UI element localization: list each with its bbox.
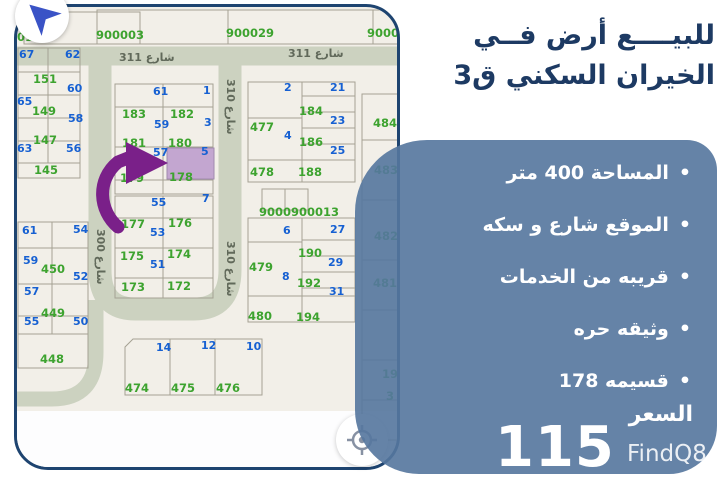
ad-image: 0190900003900029900026762151656014958147… [0, 0, 720, 480]
panel-bullet-item: وثيقه حره [355, 316, 691, 343]
compass-icon [15, 0, 69, 43]
plot-map: 0190900003900029900026762151656014958147… [14, 4, 400, 470]
details-panel: المساحة 400 مترالموقع شارع و سكهقريبه من… [355, 140, 717, 474]
panel-bullet-item: قريبه من الخدمات [355, 264, 691, 291]
panel-bullet-item: قسيمه 178 [355, 368, 691, 395]
ad-title-line1: للبيــــع أرض فــي [405, 16, 715, 56]
panel-bullet-item: الموقع شارع و سكه [355, 212, 691, 239]
price-value: 115 [495, 420, 615, 476]
pointer-arrow [14, 4, 400, 470]
price-label: السعر [629, 402, 693, 427]
watermark: FindQ8 [627, 441, 707, 467]
ad-title: للبيــــع أرض فــي الخيران السكني ق3 [405, 16, 715, 96]
panel-bullet-item: المساحة 400 متر [355, 160, 691, 187]
navigation-arrow-icon [15, 0, 69, 43]
details-list: المساحة 400 مترالموقع شارع و سكهقريبه من… [355, 140, 717, 395]
ad-title-line2: الخيران السكني ق3 [405, 56, 715, 96]
